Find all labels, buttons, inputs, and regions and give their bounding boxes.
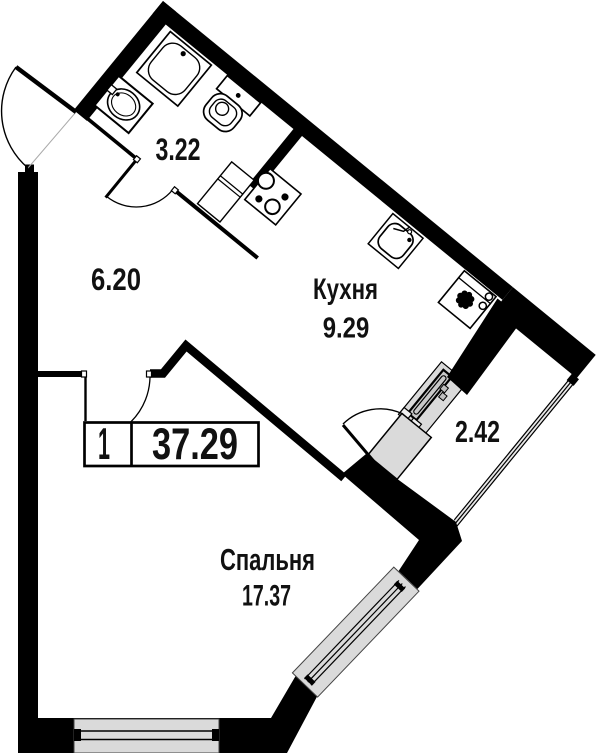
svg-text:2.42: 2.42 [455, 415, 500, 449]
svg-text:9.29: 9.29 [323, 313, 370, 345]
svg-text:3.22: 3.22 [156, 132, 201, 167]
svg-text:Спальня: Спальня [220, 543, 315, 577]
svg-text:Кухня: Кухня [313, 273, 378, 306]
svg-text:17.37: 17.37 [242, 580, 291, 613]
svg-text:6.20: 6.20 [91, 261, 141, 297]
svg-text:37.29: 37.29 [152, 420, 238, 469]
svg-text:1: 1 [98, 420, 110, 469]
